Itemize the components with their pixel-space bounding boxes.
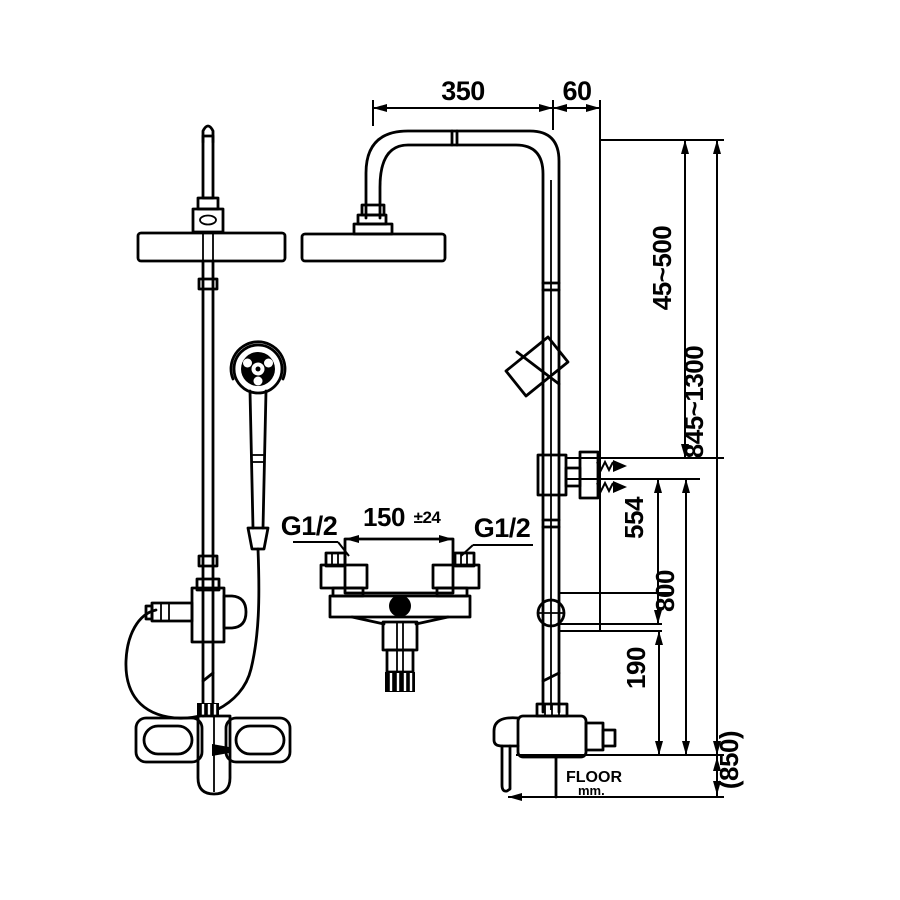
dim-mixer-height: 800	[650, 570, 680, 612]
pipe-collar-upper	[198, 198, 218, 209]
rain-head-side	[302, 234, 445, 261]
valve-stub-side	[603, 730, 615, 746]
diverter-assembly	[146, 588, 246, 642]
dimension-lines	[373, 100, 724, 801]
dim-shower-arm-reach: 350	[441, 76, 485, 106]
dim-overall-height: 845~1300	[679, 346, 709, 458]
floor-unit-label: mm.	[578, 783, 605, 798]
bracket-stem	[566, 468, 580, 486]
head-mount-tab	[354, 224, 392, 234]
top-pipe	[203, 136, 213, 198]
diverter-knob	[224, 596, 246, 628]
valve-handle-knuckle	[494, 718, 518, 746]
inlet-block-right	[433, 565, 479, 588]
rain-head-front	[138, 233, 285, 261]
outlet-column-lower	[387, 650, 413, 672]
dim-floor-reference: (850)	[714, 731, 744, 789]
dim-wall-offset: 60	[562, 76, 591, 106]
hand-shower-front	[126, 342, 285, 718]
valve-handle-lever	[502, 746, 510, 791]
front-view-figure	[126, 126, 290, 794]
dimension-labels: 350 60 45~500 845~1300 554 800 190 (850)…	[281, 76, 744, 798]
dim-inlet-tolerance: ±24	[414, 508, 442, 527]
dim-arrow	[345, 535, 359, 543]
diverter-rod	[152, 603, 192, 621]
side-view-figure	[302, 131, 627, 797]
hand-shower-cone	[248, 528, 268, 549]
dim-head-height-adjust: 45~500	[647, 226, 677, 311]
gooseneck-inner	[380, 145, 543, 712]
shower-drawing-canvas: 350 60 45~500 845~1300 554 800 190 (850)…	[0, 0, 900, 900]
dim-bracket-drop: 554	[619, 496, 649, 539]
valve-body-side	[518, 716, 586, 757]
dim-lower-section: 190	[621, 647, 651, 689]
outlet-port	[389, 595, 411, 617]
slider-block	[192, 588, 224, 642]
thread-label-left: G1/2	[281, 511, 338, 541]
thread-label-right: G1/2	[474, 513, 531, 543]
dim-inlet-center-distance: 150	[363, 502, 405, 532]
valve-connector-side	[586, 723, 603, 750]
pipe-collar-lower	[193, 209, 223, 232]
mixer-inlet-detail	[293, 535, 533, 692]
collar-detail	[200, 216, 216, 225]
top-pipe-tip	[203, 126, 213, 142]
technical-drawing-page: 350 60 45~500 845~1300 554 800 190 (850)…	[0, 0, 900, 900]
gooseneck-outer	[366, 131, 559, 712]
outlet-column-upper	[383, 622, 417, 650]
rail-break-mark	[203, 673, 213, 681]
mixer-valve-front	[136, 703, 290, 794]
dim-arrow	[439, 535, 453, 543]
